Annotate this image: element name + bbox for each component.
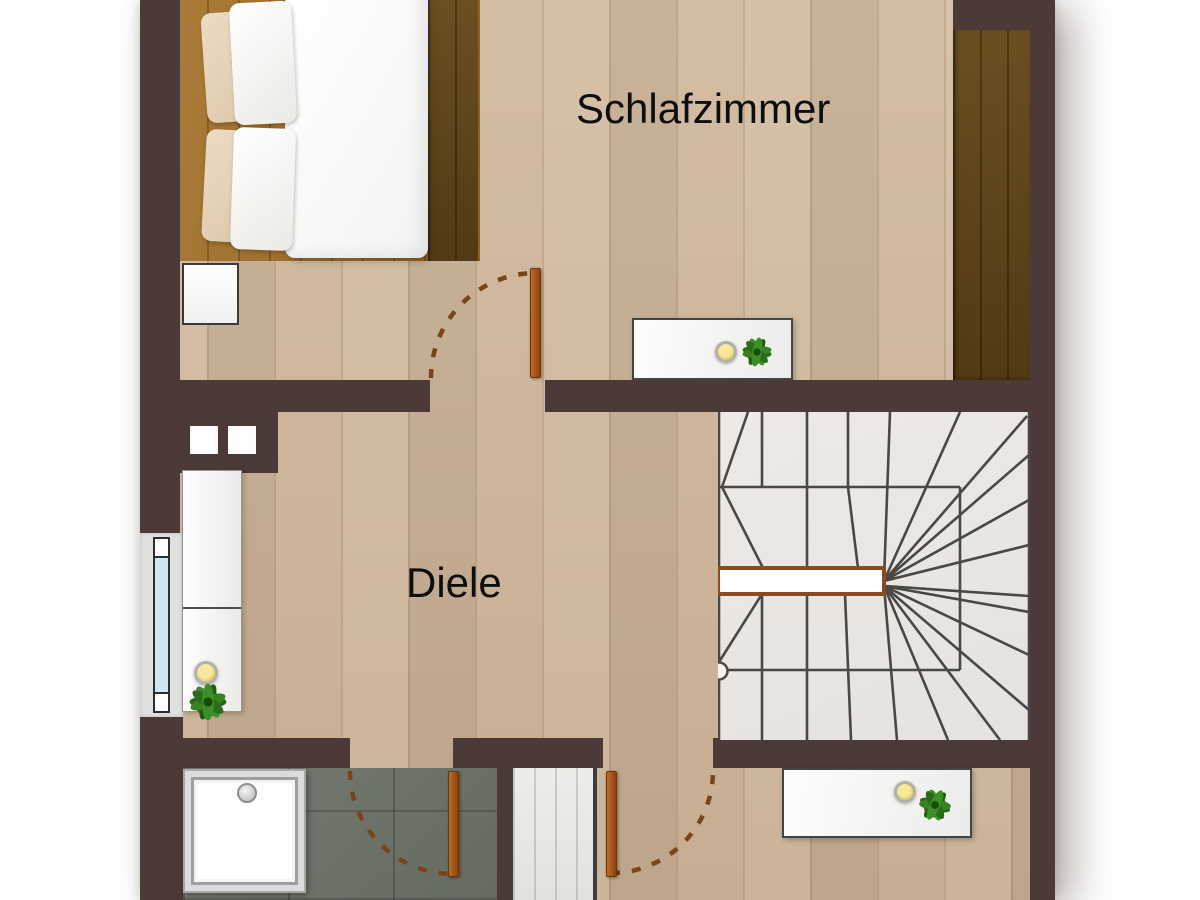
pillow [229, 0, 297, 125]
wall-left-mid [140, 473, 180, 535]
hall-door [606, 771, 617, 877]
pillow [230, 127, 296, 251]
bedroom-label: Schlafzimmer [576, 85, 830, 133]
staircase-drawing [718, 412, 1030, 740]
newel-post [718, 663, 728, 680]
chimney-flue [228, 426, 256, 454]
wall-bedroom-hallway-right [545, 380, 1030, 412]
wall-bottom-left [183, 738, 350, 768]
window-mullion [155, 692, 168, 711]
window-mullion [155, 539, 168, 558]
page-background: { "floorplan": { "rooms": { "bedroom": {… [0, 0, 1200, 900]
hallway-label: Diele [406, 559, 502, 607]
plant-icon [910, 780, 960, 830]
bathroom-door [448, 771, 459, 877]
wall-bottom-right [713, 738, 1055, 768]
nightstand [182, 263, 239, 325]
plant-icon [734, 329, 780, 375]
staircase [718, 412, 1030, 740]
plant-icon [179, 673, 237, 731]
storage-room-floor [513, 768, 597, 900]
bed-duvet [285, 0, 428, 258]
window [153, 537, 170, 713]
cabinet-divider [183, 607, 241, 609]
floor-plan: Schlafzimmer Diele [140, 0, 1055, 900]
shower-drain [237, 783, 257, 803]
shower [183, 769, 306, 893]
bed-frame [428, 0, 478, 261]
wall-bottom-mid [453, 738, 603, 768]
chimney-flue [190, 426, 218, 454]
bedroom-door [530, 268, 541, 378]
stairs-handrail [718, 568, 884, 594]
wall-left-upper [140, 0, 180, 382]
wardrobe [953, 28, 1030, 380]
wall-left-lower [140, 715, 183, 900]
wall-bath-partition [497, 768, 513, 900]
